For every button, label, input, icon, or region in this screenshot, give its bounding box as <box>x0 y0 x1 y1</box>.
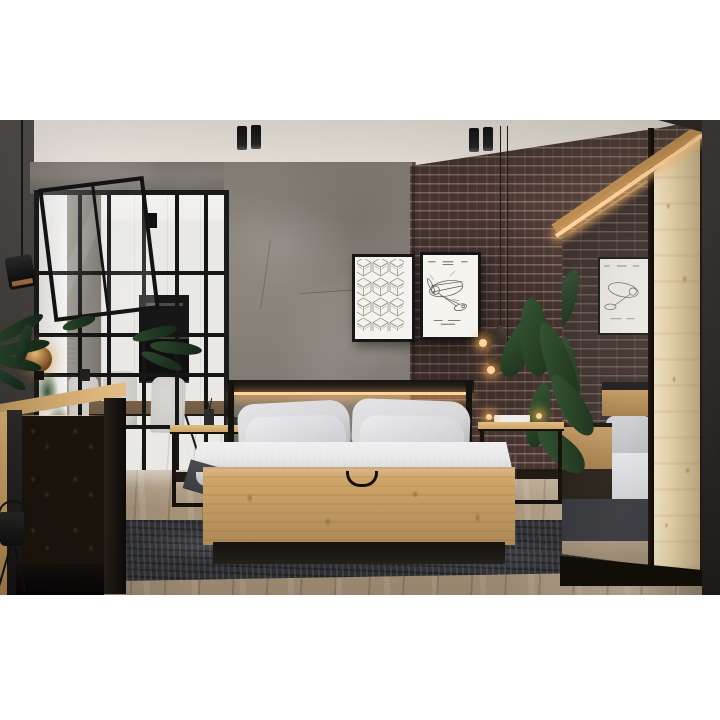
page <box>0 0 720 720</box>
vignette <box>0 120 720 595</box>
bedroom-photo <box>0 120 720 595</box>
